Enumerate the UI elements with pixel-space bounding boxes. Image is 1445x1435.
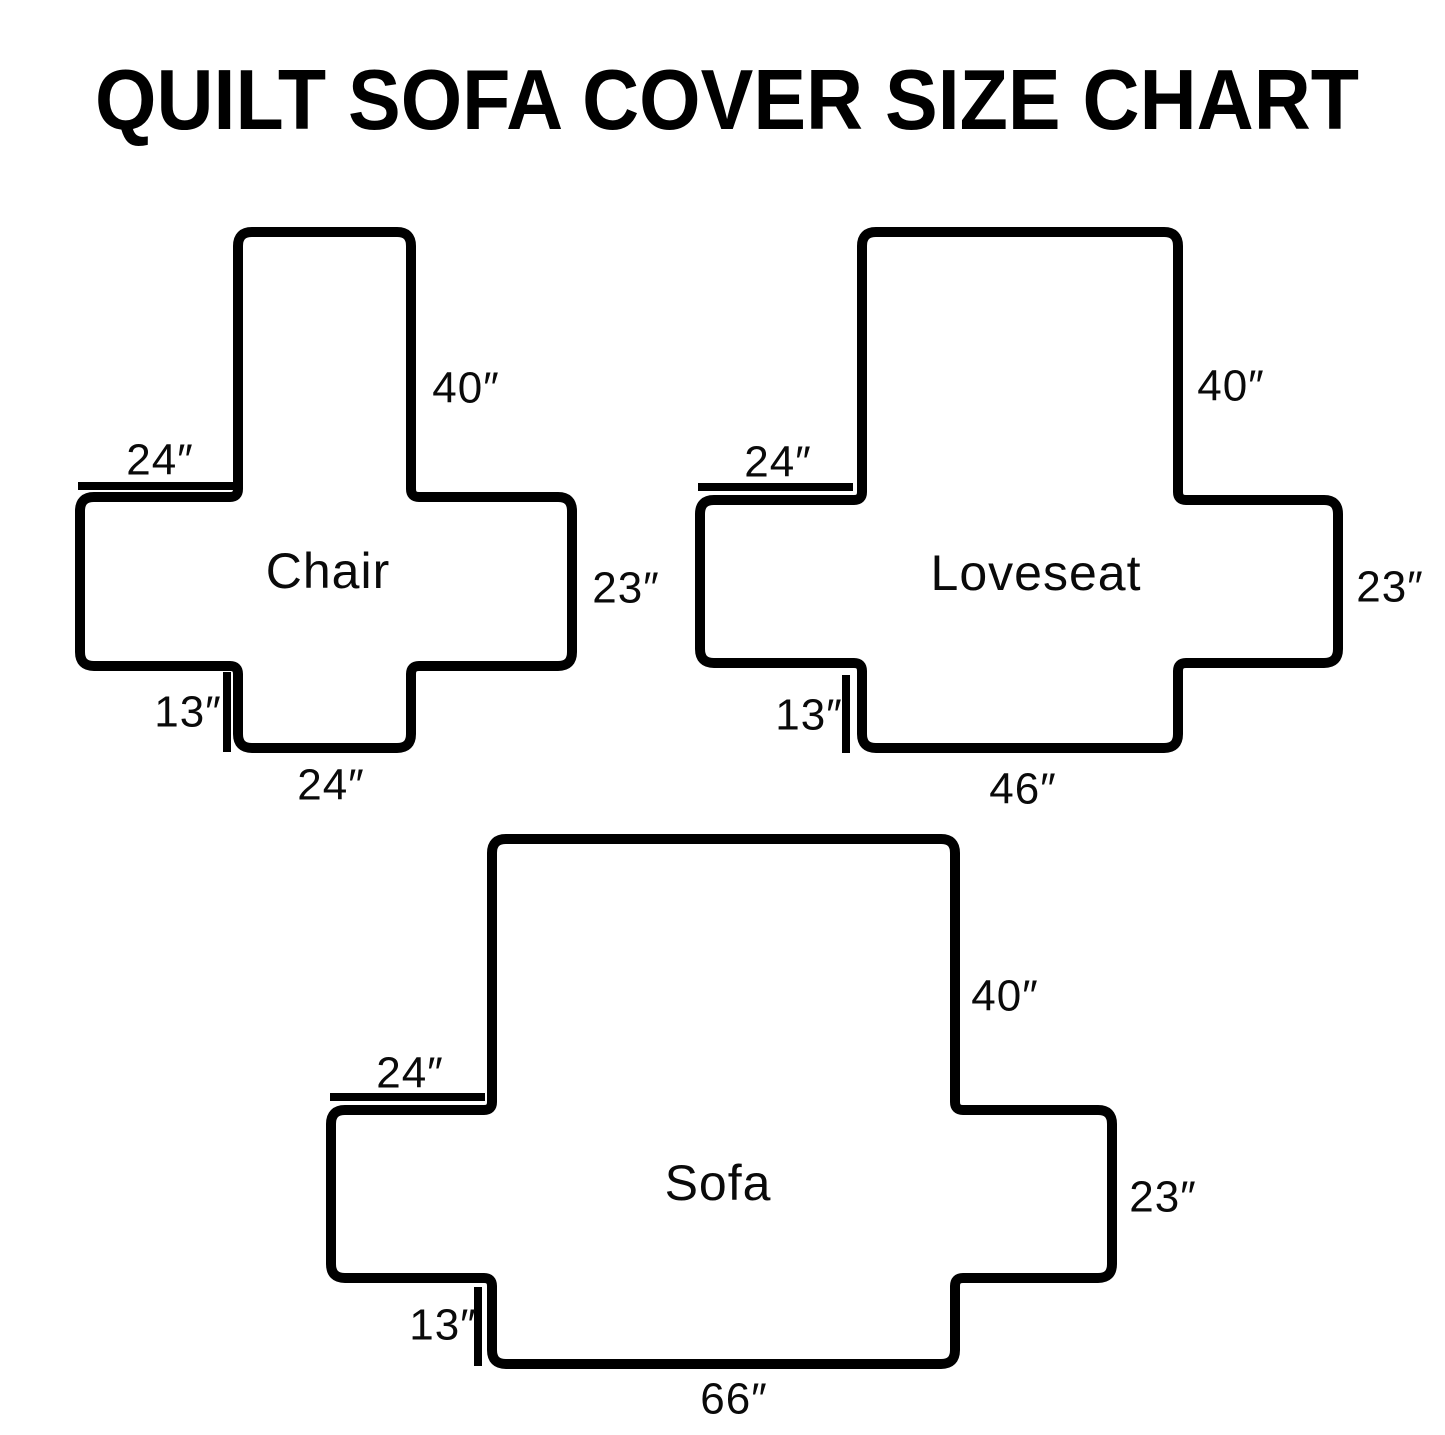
sofa-front-skirt-label: 13″: [409, 1301, 477, 1350]
sofa-name-label: Sofa: [665, 1155, 772, 1211]
loveseat-back-length-label: 40″: [1197, 362, 1265, 411]
chair-arm-height-label: 23″: [592, 564, 660, 613]
sofa-seat-front-width-label: 66″: [700, 1375, 768, 1424]
chair-front-skirt-label: 13″: [154, 688, 222, 737]
loveseat-name-label: Loveseat: [931, 545, 1142, 601]
sofa-arm-height-label: 23″: [1129, 1173, 1197, 1222]
size-chart-canvas: QUILT SOFA COVER SIZE CHART 40″ 24″ Chai…: [0, 0, 1445, 1435]
loveseat-front-skirt-label: 13″: [775, 691, 843, 740]
size-chart-page: QUILT SOFA COVER SIZE CHART 40″ 24″ Chai…: [0, 0, 1445, 1435]
chair-seat-front-width-label: 24″: [297, 761, 365, 810]
sofa-diagram: 40″ 24″ Sofa 23″ 13″ 66″: [330, 839, 1197, 1424]
chair-arm-width-label: 24″: [126, 436, 194, 485]
page-title: QUILT SOFA COVER SIZE CHART: [95, 53, 1359, 148]
loveseat-diagram: 40″ 24″ Loveseat 23″ 13″ 46″: [698, 232, 1424, 814]
sofa-back-length-label: 40″: [971, 972, 1039, 1021]
sofa-cover-outline: [331, 839, 1112, 1364]
chair-diagram: 40″ 24″ Chair 23″ 13″ 24″: [78, 232, 660, 810]
sofa-arm-width-label: 24″: [376, 1049, 444, 1098]
chair-back-length-label: 40″: [432, 364, 500, 413]
loveseat-arm-height-label: 23″: [1356, 563, 1424, 612]
loveseat-seat-front-width-label: 46″: [989, 765, 1057, 814]
loveseat-arm-width-label: 24″: [744, 438, 812, 487]
chair-name-label: Chair: [266, 543, 390, 599]
